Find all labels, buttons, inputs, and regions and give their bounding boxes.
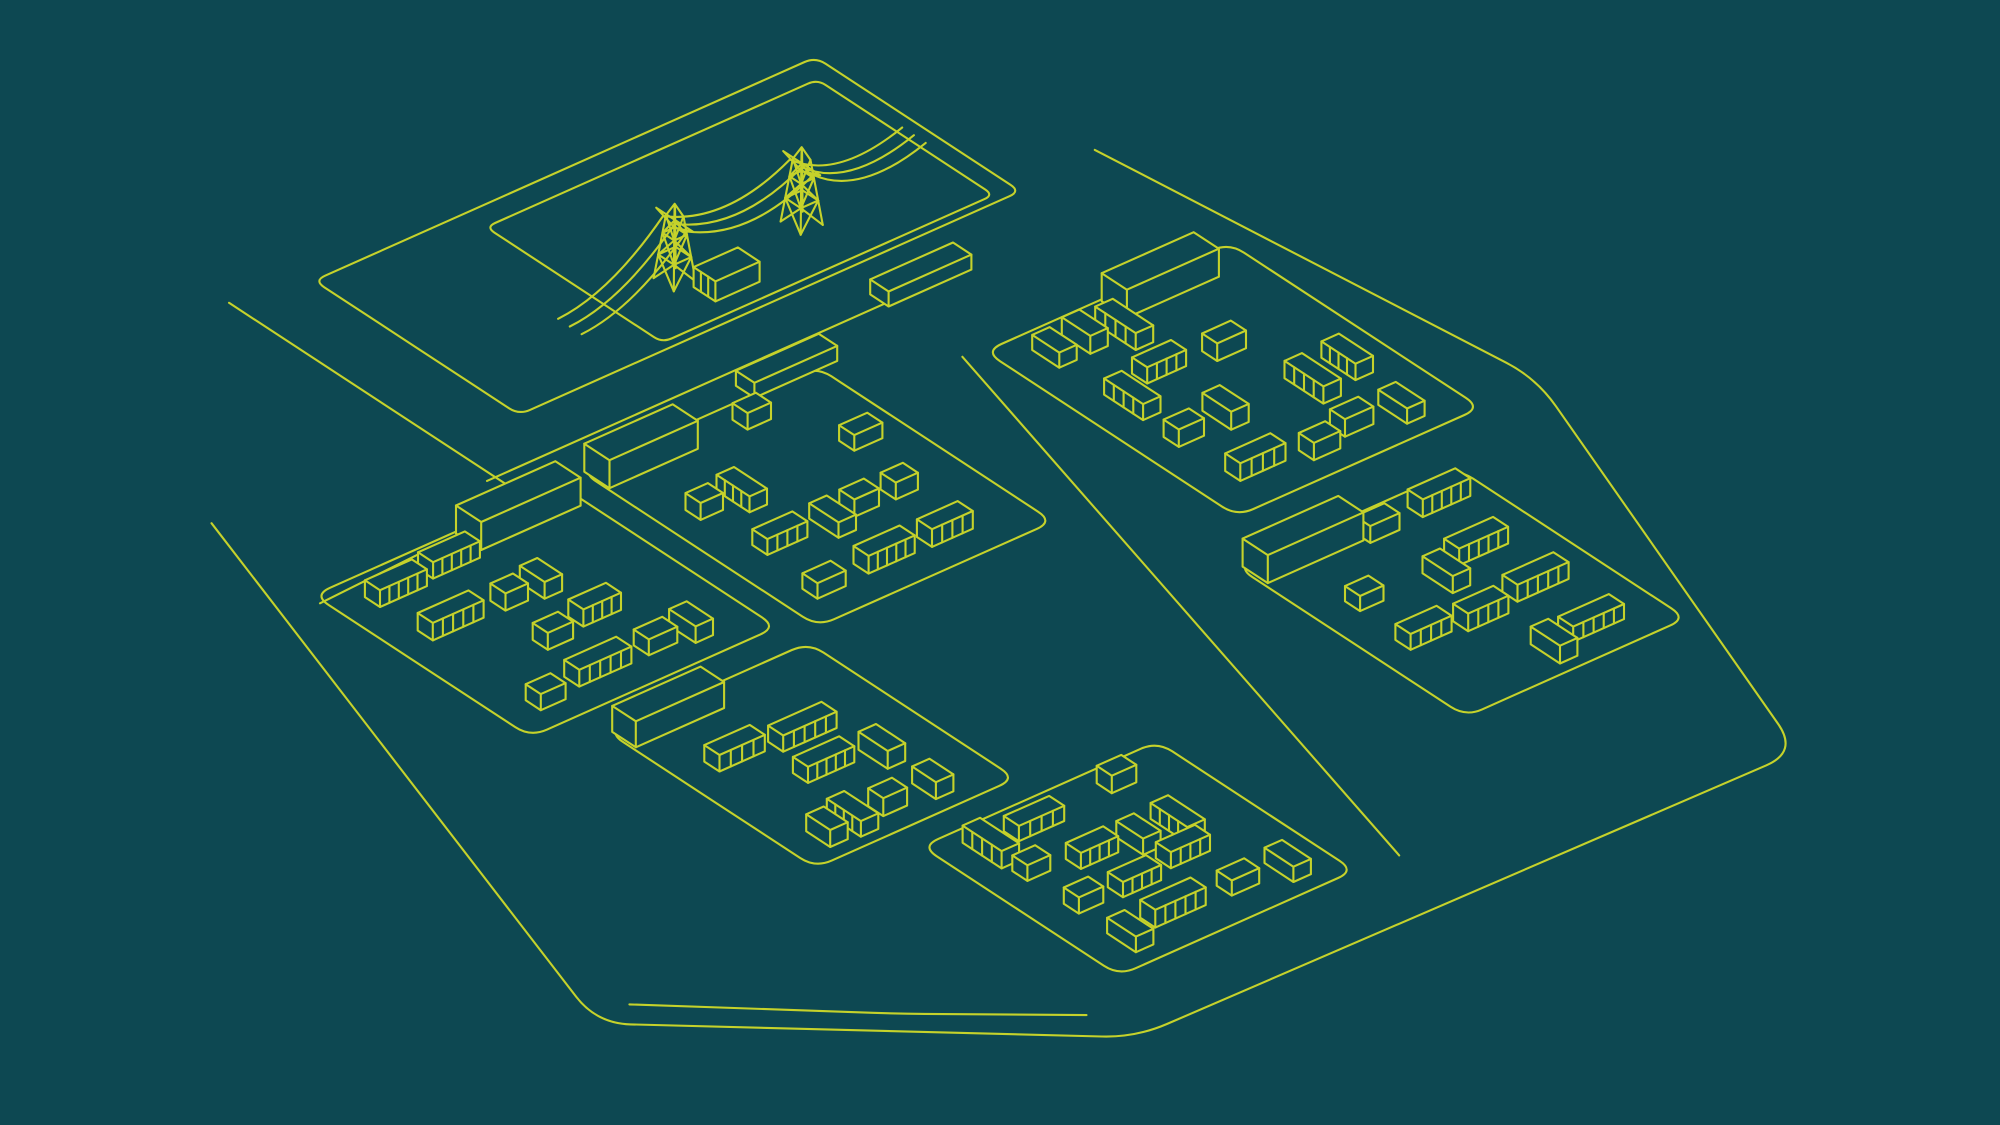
garage-block-0 xyxy=(736,334,837,398)
house xyxy=(704,725,765,772)
pylon-apex xyxy=(666,204,684,221)
house xyxy=(717,467,768,512)
house xyxy=(526,673,566,710)
house xyxy=(568,583,621,627)
house xyxy=(533,612,573,650)
house xyxy=(564,637,631,687)
house xyxy=(634,617,678,656)
house xyxy=(859,724,906,769)
house xyxy=(686,483,724,520)
pylon-leg xyxy=(801,164,802,235)
house xyxy=(1217,858,1260,895)
house xyxy=(418,590,484,640)
house xyxy=(1108,855,1161,897)
power-lines xyxy=(558,128,926,335)
collector-road-edge xyxy=(487,274,952,481)
house xyxy=(881,463,918,500)
house xyxy=(917,501,973,547)
house xyxy=(733,393,772,430)
garage-block-0-body xyxy=(736,334,837,398)
house xyxy=(1345,576,1384,612)
catenary-wire-1 xyxy=(570,135,914,326)
pylon-enclosure-fence xyxy=(490,82,989,340)
site-boundary xyxy=(212,150,1786,1037)
estate-scene xyxy=(0,0,2000,1125)
house xyxy=(1225,433,1285,481)
power-pylon-1 xyxy=(781,147,823,235)
buildings xyxy=(365,232,1624,952)
house xyxy=(802,561,845,599)
house xyxy=(1265,840,1311,882)
apartment-block xyxy=(1243,496,1364,583)
house xyxy=(1502,552,1568,602)
substation-building xyxy=(694,247,760,301)
house xyxy=(1453,586,1508,631)
house xyxy=(490,574,528,611)
apartment-block xyxy=(584,404,698,488)
pylon-leg xyxy=(674,221,675,292)
house xyxy=(854,526,915,574)
apartment-block xyxy=(612,667,724,748)
house xyxy=(1202,321,1246,361)
house xyxy=(1064,877,1104,914)
house xyxy=(365,559,427,607)
house xyxy=(1299,421,1341,460)
perimeter-road-inner-edge xyxy=(629,1004,1086,1015)
catenary-wire-2 xyxy=(582,143,926,334)
house xyxy=(912,759,953,799)
house xyxy=(1164,408,1204,447)
house xyxy=(1202,385,1248,430)
house xyxy=(839,413,882,451)
isometric-housing-estate-illustration xyxy=(0,0,2000,1125)
house xyxy=(1066,826,1118,869)
house xyxy=(752,511,807,555)
house xyxy=(1156,825,1210,868)
house xyxy=(1378,382,1424,424)
house xyxy=(1004,796,1064,841)
house xyxy=(1097,755,1137,793)
house xyxy=(1395,606,1451,650)
house xyxy=(1408,468,1471,517)
